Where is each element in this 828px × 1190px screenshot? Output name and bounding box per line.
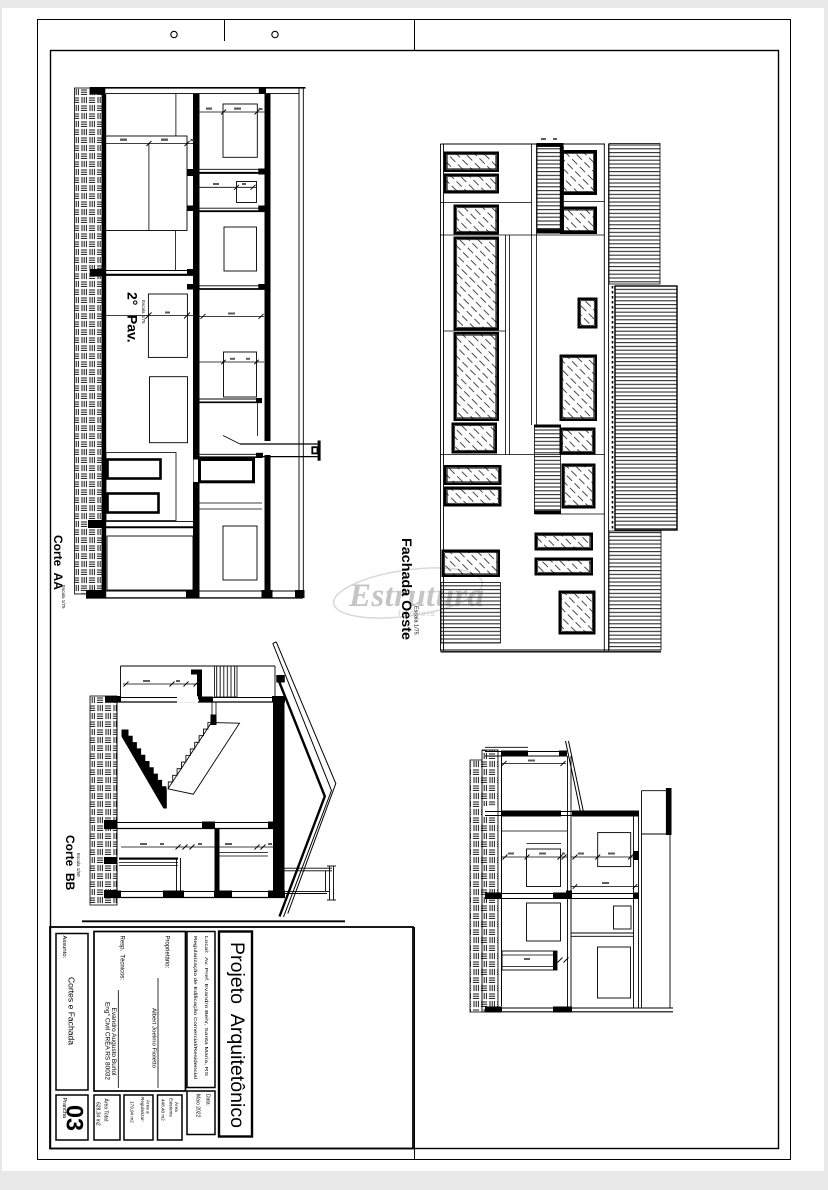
svg-text:Corte AA: Corte AA: [51, 535, 65, 590]
svg-text:Regularizar:: Regularizar:: [140, 1097, 145, 1122]
svg-text:Resp. Técnicos:: Resp. Técnicos:: [119, 936, 125, 981]
svg-text:628,34 m2: 628,34 m2: [95, 1102, 101, 1126]
svg-text:2°: 2°: [125, 292, 141, 305]
svg-text:Assunto:: Assunto:: [61, 936, 67, 959]
svg-text:Escala 1/75: Escala 1/75: [141, 300, 146, 324]
svg-text:Albert Joelmo Fioletto: Albert Joelmo Fioletto: [150, 1008, 156, 1068]
svg-text:Proprietário:: Proprietário:: [164, 936, 170, 969]
svg-text:Escala 1/50: Escala 1/50: [76, 853, 81, 877]
svg-text:Escala 1/75: Escala 1/75: [413, 606, 419, 635]
svg-text:Cortes e Fachada: Cortes e Fachada: [67, 977, 76, 1045]
svg-text:Evandro Augusto Burlol: Evandro Augusto Burlol: [110, 1008, 116, 1076]
svg-text:Local: Av. Pref. Evandro Behr: Local: Av. Pref. Evandro Behr, Santa Mar…: [204, 936, 209, 1076]
svg-text:Área: Área: [174, 1102, 180, 1112]
svg-text:Área Total:: Área Total:: [103, 1099, 110, 1123]
svg-text:448,40 m2: 448,40 m2: [161, 1099, 166, 1121]
svg-text:Maio 2022: Maio 2022: [195, 1094, 201, 1118]
svg-text:Regularização de Edificação Co: Regularização de Edificação Comercial/Re…: [193, 936, 198, 1079]
svg-text:Projeto Arquitetônico: Projeto Arquitetônico: [226, 942, 248, 1128]
svg-text:Corte BB: Corte BB: [63, 835, 77, 891]
svg-text:Existente: Existente: [169, 1098, 174, 1117]
svg-text:Eng° Civil CREA RS 80032: Eng° Civil CREA RS 80032: [104, 1002, 110, 1081]
svg-text:Data:: Data:: [205, 1094, 211, 1106]
svg-text:03: 03: [61, 1105, 88, 1131]
svg-text:Escala 1/75: Escala 1/75: [61, 585, 66, 609]
svg-text:Área a: Área a: [146, 1100, 152, 1114]
svg-text:179,94 m2: 179,94 m2: [130, 1101, 135, 1123]
